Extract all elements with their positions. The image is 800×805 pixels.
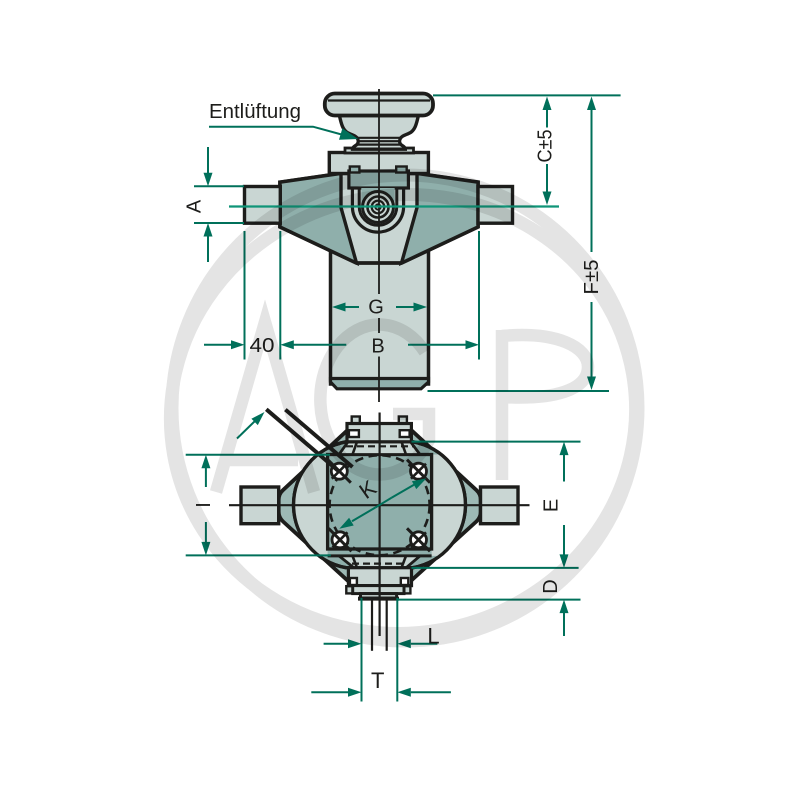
svg-text:T: T [371, 668, 384, 693]
svg-text:B: B [371, 336, 384, 358]
svg-text:Entlüftung: Entlüftung [209, 101, 301, 123]
svg-text:E: E [541, 499, 563, 512]
svg-text:A: A [184, 199, 206, 213]
svg-text:G: G [368, 297, 384, 319]
svg-text:C±5: C±5 [535, 130, 557, 163]
